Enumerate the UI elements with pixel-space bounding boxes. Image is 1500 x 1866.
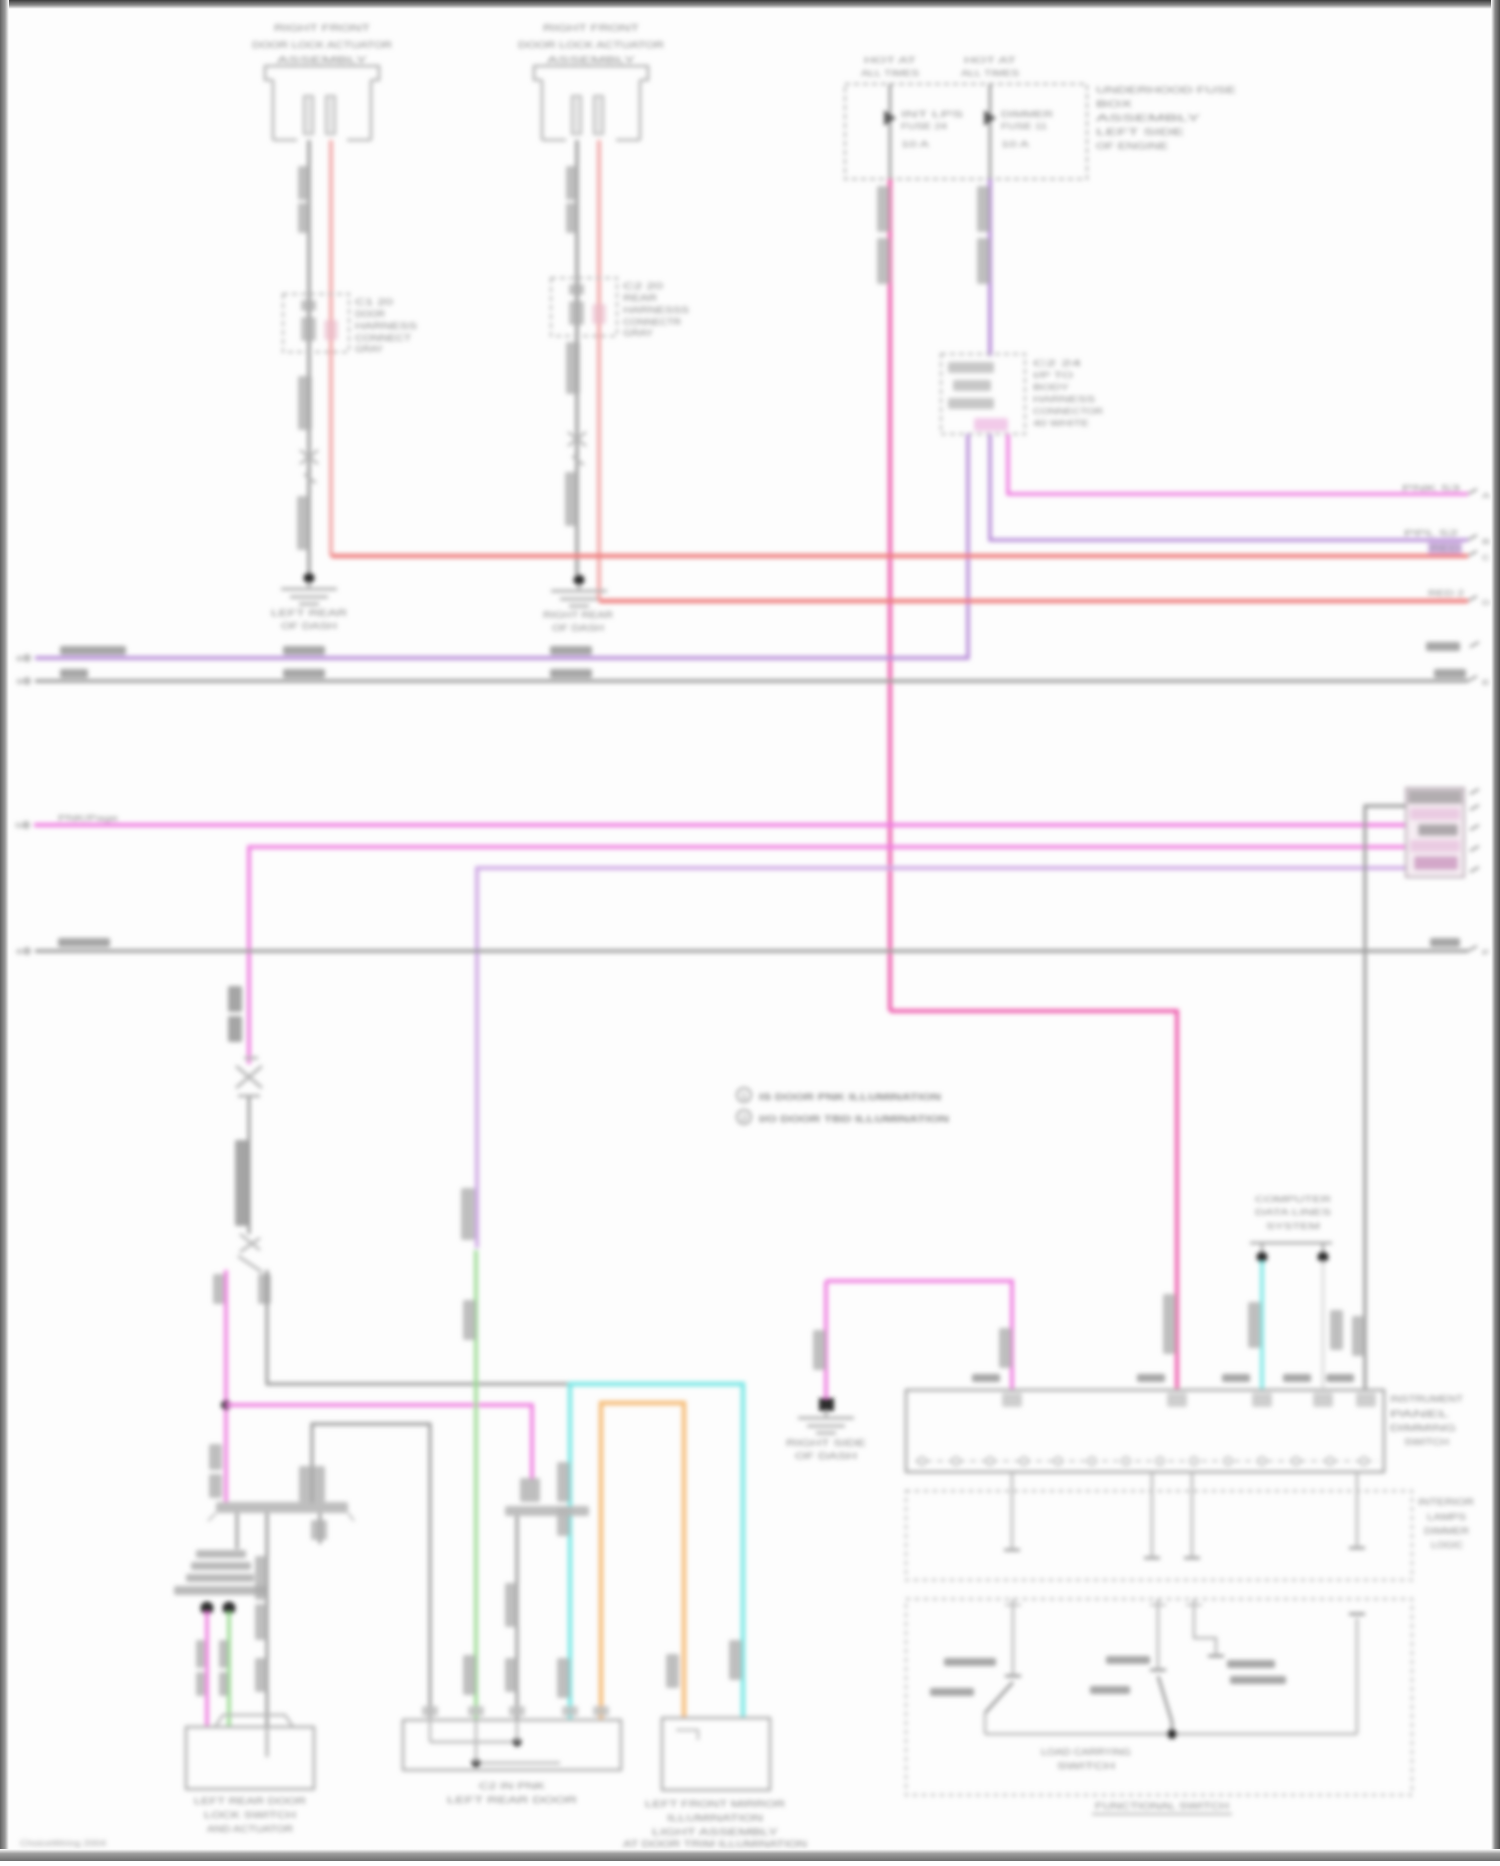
svg-text:40 WHITE: 40 WHITE [1033,418,1089,428]
svg-text:HOT AT: HOT AT [964,55,1016,65]
svg-text:DIMMING: DIMMING [1390,1423,1456,1433]
svg-text:E: E [1482,680,1491,687]
svg-text:HARNESS: HARNESS [355,321,417,331]
svg-text:PNK/Page: PNK/Page [58,813,118,823]
svg-text:AT DOOR TRIM ILLUMINATION: AT DOOR TRIM ILLUMINATION [623,1839,807,1849]
svg-text:C2 20: C2 20 [623,281,663,291]
svg-text:DIMMER: DIMMER [1424,1526,1470,1536]
svg-text:INSTRUMENT: INSTRUMENT [1390,1394,1464,1404]
svg-text:2: 2 [741,1114,749,1123]
svg-text:ILLUMINATION: ILLUMINATION [667,1813,763,1823]
svg-text:LAMPS: LAMPS [1427,1512,1466,1522]
svg-text:OF DASH: OF DASH [281,621,337,631]
svg-text:CONNECTOR: CONNECTOR [1033,406,1103,416]
svg-text:8: 8 [16,656,23,663]
svg-text:UNDERHOOD FUSE: UNDERHOOD FUSE [1096,85,1236,95]
svg-text:SWITCH: SWITCH [1057,1761,1115,1771]
svg-text:RIGHT FRONT: RIGHT FRONT [274,23,370,34]
svg-text:ASSEMBLY: ASSEMBLY [277,55,368,66]
svg-text:RIGHT SIDE: RIGHT SIDE [786,1438,866,1448]
svg-text:OF DASH: OF DASH [552,623,604,633]
svg-text:10 A: 10 A [901,139,930,149]
svg-text:6: 6 [16,949,23,956]
svg-text:HARNESSS: HARNESSS [623,305,689,315]
svg-text:SWITCH: SWITCH [1404,1437,1449,1447]
svg-text:D: D [1482,600,1490,607]
svg-text:CONNECTR: CONNECTR [623,317,682,327]
svg-text:C: C [1482,555,1490,562]
svg-text:C1 20: C1 20 [355,297,393,307]
svg-text:RED: RED [1430,543,1460,553]
svg-text:5: 5 [15,823,22,830]
svg-text:DOOR LOCK ACTUATOR: DOOR LOCK ACTUATOR [252,40,392,51]
svg-text:LEFT REAR DOOR: LEFT REAR DOOR [447,1795,578,1805]
svg-text:ASSEMBLY: ASSEMBLY [1096,113,1200,123]
svg-text:SYSTEM: SYSTEM [1266,1221,1320,1231]
svg-text:RED 2: RED 2 [1428,588,1464,598]
svg-text:DIMMER: DIMMER [1001,109,1053,119]
svg-text:HARNESS: HARNESS [1033,394,1095,404]
svg-text:LEFT REAR: LEFT REAR [271,608,348,618]
svg-text:LEFT FRONT MIRROR: LEFT FRONT MIRROR [645,1799,786,1809]
svg-text:CONNECT: CONNECT [355,333,412,343]
svg-text:10 A: 10 A [1001,139,1030,149]
svg-text:FUNCTIONAL SWITCH: FUNCTIONAL SWITCH [1095,1801,1229,1812]
svg-text:LIGHT ASSEMBLY: LIGHT ASSEMBLY [652,1827,778,1837]
svg-text:FUSE 24: FUSE 24 [901,121,947,131]
svg-text:RIGHT FRONT: RIGHT FRONT [543,23,639,34]
svg-text:C2 24: C2 24 [1033,358,1082,368]
svg-text:1: 1 [741,1092,749,1101]
svg-text:ASSEMBLY: ASSEMBLY [547,55,636,66]
svg-text:A: A [1482,493,1491,500]
svg-text:F: F [1482,950,1490,957]
svg-text:PANEL: PANEL [1390,1409,1449,1419]
svg-text:DOOR LOCK ACTUATOR: DOOR LOCK ACTUATOR [518,40,664,51]
svg-text:ALL TIMES: ALL TIMES [961,68,1019,78]
svg-text:C2 IN PNK: C2 IN PNK [479,1781,545,1791]
svg-text:GRAY: GRAY [623,328,653,338]
svg-text:DATA LINES: DATA LINES [1255,1207,1332,1217]
svg-text:ChoiceWiring 2004: ChoiceWiring 2004 [20,1839,107,1848]
svg-text:PNK 53: PNK 53 [1402,483,1461,493]
svg-text:LOCK SWITCH: LOCK SWITCH [204,1810,296,1820]
svg-text:HOT AT: HOT AT [864,55,916,65]
svg-text:LEFT REAR DOOR: LEFT REAR DOOR [194,1796,307,1806]
svg-text:AND ACTUATOR: AND ACTUATOR [207,1824,294,1834]
svg-text:INT LPS: INT LPS [901,109,964,119]
svg-text:COMPUTER: COMPUTER [1255,1194,1331,1204]
svg-text:I/P TO: I/P TO [1033,370,1074,380]
svg-text:IS DOOR PNK ILLUMINATION: IS DOOR PNK ILLUMINATION [759,1092,941,1103]
svg-text:OF DASH: OF DASH [795,1451,857,1461]
svg-text:INTERIOR: INTERIOR [1418,1497,1475,1507]
svg-text:RIGHT REAR: RIGHT REAR [543,610,614,620]
svg-text:OF ENGINE: OF ENGINE [1096,141,1168,151]
svg-text:9: 9 [16,679,23,686]
svg-text:REAR: REAR [623,293,658,303]
svg-text:B: B [1482,539,1491,546]
svg-text:DOOR: DOOR [355,309,386,319]
svg-text:ALL TIMES: ALL TIMES [861,68,919,78]
svg-text:BOX: BOX [1096,99,1132,109]
svg-text:PPL 52: PPL 52 [1404,528,1459,538]
svg-text:BODY: BODY [1033,382,1069,392]
svg-text:GRAY: GRAY [355,344,383,354]
svg-text:I/O DOOR TBD ILLUMINATION: I/O DOOR TBD ILLUMINATION [759,1114,949,1125]
svg-text:LOGIC: LOGIC [1431,1540,1464,1550]
svg-text:FUSE 11: FUSE 11 [1001,121,1047,131]
svg-text:LOAD CARRYING: LOAD CARRYING [1041,1747,1131,1757]
svg-text:LEFT SIDE: LEFT SIDE [1096,127,1184,137]
